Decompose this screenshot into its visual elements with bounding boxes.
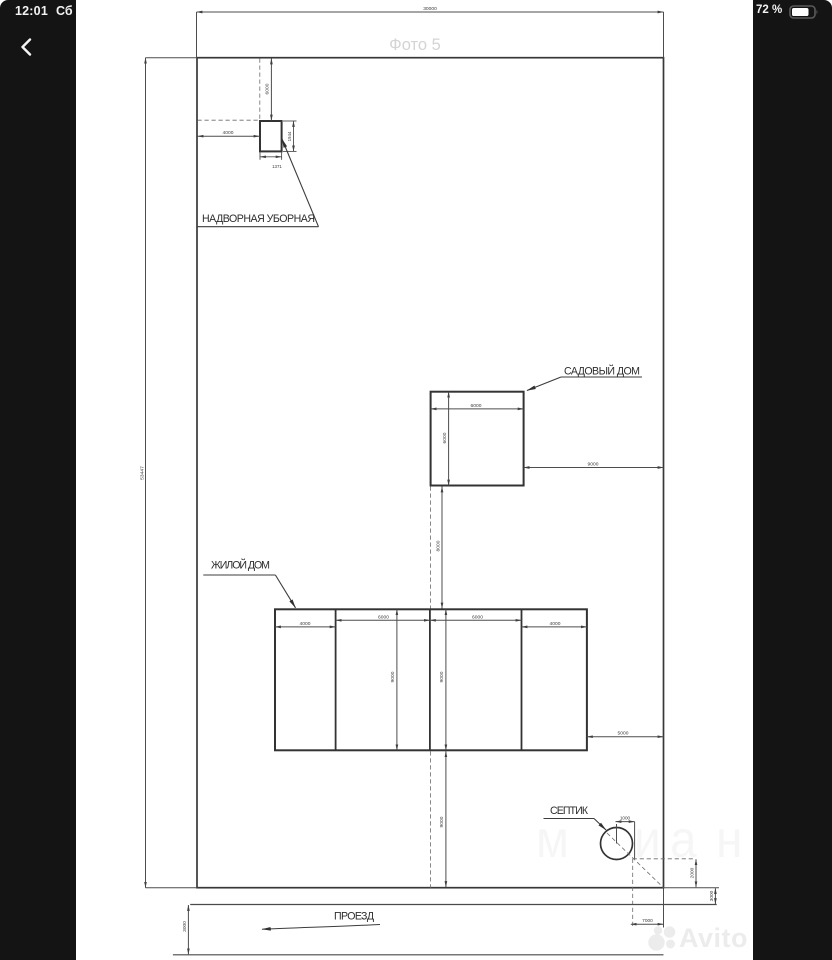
svg-text:ЖИЛОЙ ДОМ: ЖИЛОЙ ДОМ xyxy=(211,559,270,572)
svg-text:6000: 6000 xyxy=(471,403,482,409)
svg-text:6000: 6000 xyxy=(378,614,389,620)
svg-text:4000: 4000 xyxy=(300,621,311,627)
svg-text:30000: 30000 xyxy=(423,6,437,12)
svg-text:1371: 1371 xyxy=(272,164,282,169)
svg-text:НАДВОРНАЯ УБОРНАЯ: НАДВОРНАЯ УБОРНАЯ xyxy=(202,213,315,225)
svg-text:3000: 3000 xyxy=(709,890,715,901)
svg-text:9000: 9000 xyxy=(439,816,445,827)
svg-text:5000: 5000 xyxy=(618,731,629,737)
svg-text:1000: 1000 xyxy=(620,816,631,821)
svg-text:53447: 53447 xyxy=(140,466,146,480)
svg-text:4000: 4000 xyxy=(223,130,234,136)
svg-text:6000: 6000 xyxy=(442,432,448,443)
svg-text:4000: 4000 xyxy=(550,621,561,627)
svg-text:1944: 1944 xyxy=(287,131,292,141)
svg-text:ПРОЕЗД: ПРОЕЗД xyxy=(334,911,374,923)
svg-text:9000: 9000 xyxy=(588,462,599,468)
svg-text:8000: 8000 xyxy=(436,540,442,551)
svg-text:9000: 9000 xyxy=(390,671,396,682)
svg-text:6000: 6000 xyxy=(265,83,271,94)
svg-text:9000: 9000 xyxy=(439,671,445,682)
svg-text:САДОВЫЙ ДОМ: САДОВЫЙ ДОМ xyxy=(564,365,640,378)
svg-text:6000: 6000 xyxy=(472,614,483,620)
svg-text:3000: 3000 xyxy=(182,921,188,932)
